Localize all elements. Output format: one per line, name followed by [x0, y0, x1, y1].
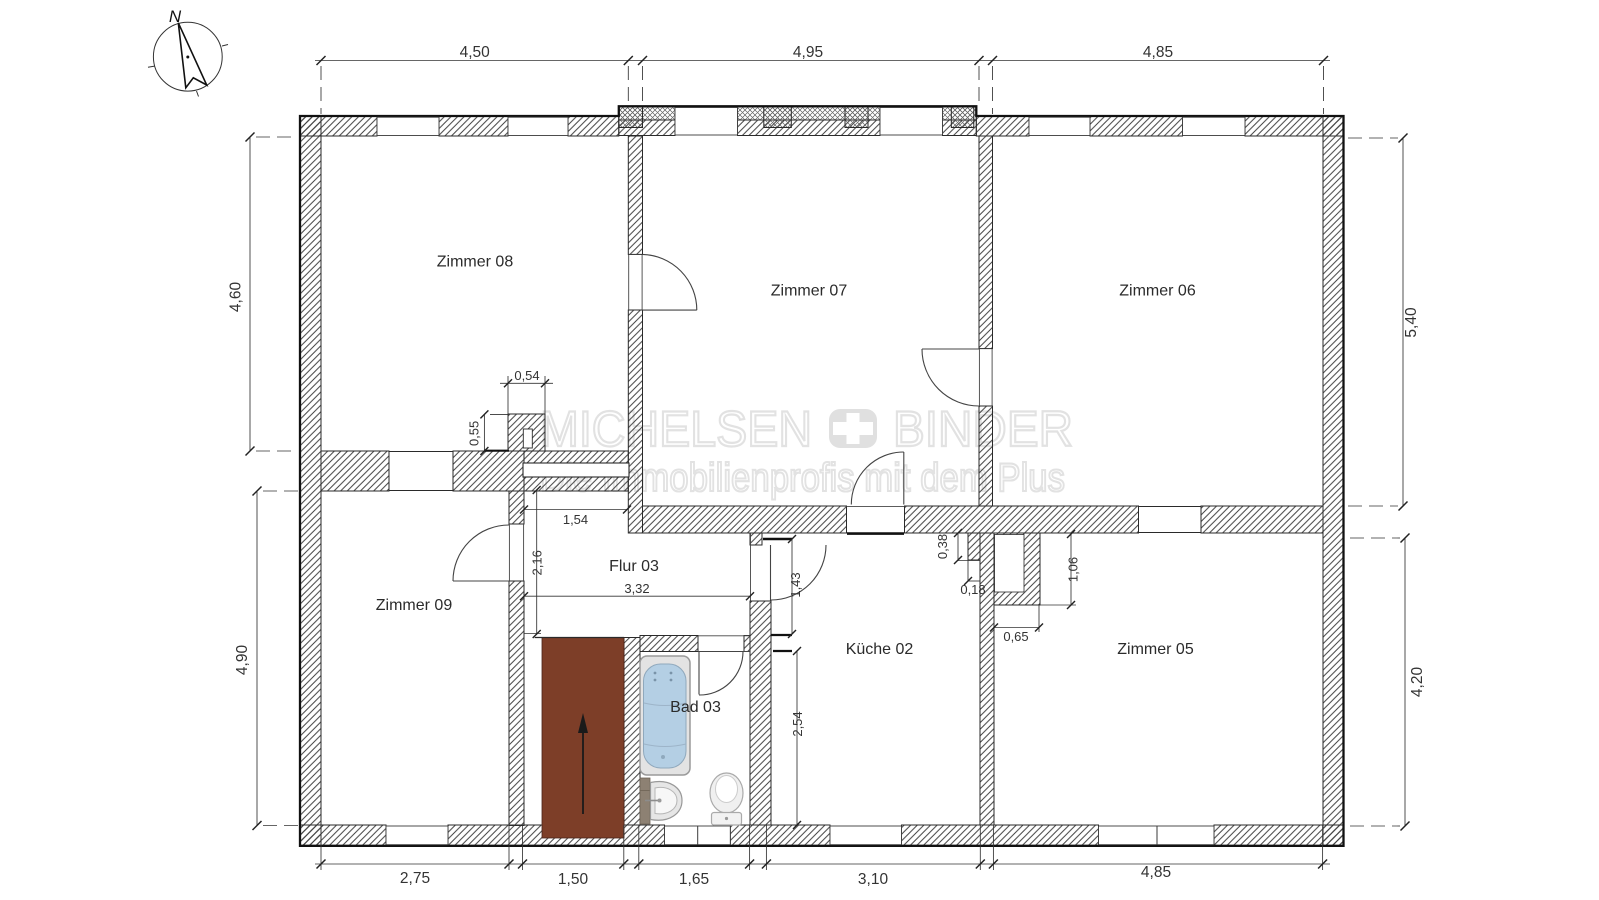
svg-text:0,55: 0,55 — [466, 421, 481, 446]
svg-text:0,54: 0,54 — [514, 368, 539, 383]
svg-text:Zimmer 05: Zimmer 05 — [1117, 641, 1194, 658]
svg-text:0,38: 0,38 — [935, 534, 950, 559]
svg-text:1,65: 1,65 — [679, 871, 709, 888]
svg-text:4,90: 4,90 — [234, 645, 251, 676]
svg-text:4,85: 4,85 — [1143, 44, 1173, 61]
svg-text:Zimmer 09: Zimmer 09 — [376, 597, 453, 614]
svg-text:Flur 03: Flur 03 — [609, 558, 659, 575]
svg-text:4,20: 4,20 — [1409, 667, 1426, 698]
svg-text:4,50: 4,50 — [460, 44, 491, 61]
svg-text:1,50: 1,50 — [558, 871, 589, 888]
svg-text:2,75: 2,75 — [400, 870, 430, 887]
svg-text:0,65: 0,65 — [1003, 629, 1028, 644]
svg-text:0,18: 0,18 — [960, 582, 985, 597]
svg-text:N: N — [169, 7, 182, 26]
svg-text:5,40: 5,40 — [1403, 307, 1420, 338]
svg-text:2,16: 2,16 — [529, 550, 544, 575]
svg-text:MICHELSEN: MICHELSEN — [540, 401, 812, 457]
svg-text:Zimmer 08: Zimmer 08 — [437, 254, 514, 271]
svg-text:3,10: 3,10 — [858, 871, 889, 888]
svg-text:4,95: 4,95 — [793, 44, 823, 61]
svg-text:Küche 02: Küche 02 — [846, 641, 914, 658]
svg-text:Zimmer 06: Zimmer 06 — [1119, 283, 1196, 300]
svg-text:1,43: 1,43 — [788, 572, 803, 597]
svg-text:1,54: 1,54 — [563, 512, 588, 527]
svg-text:Bad 03: Bad 03 — [670, 699, 721, 716]
svg-text:1,06: 1,06 — [1066, 557, 1081, 582]
svg-text:4,60: 4,60 — [228, 282, 245, 313]
svg-text:3,32: 3,32 — [624, 581, 649, 596]
svg-text:2,54: 2,54 — [790, 711, 805, 736]
svg-text:4,85: 4,85 — [1141, 864, 1171, 881]
svg-text:Zimmer 07: Zimmer 07 — [771, 283, 848, 300]
